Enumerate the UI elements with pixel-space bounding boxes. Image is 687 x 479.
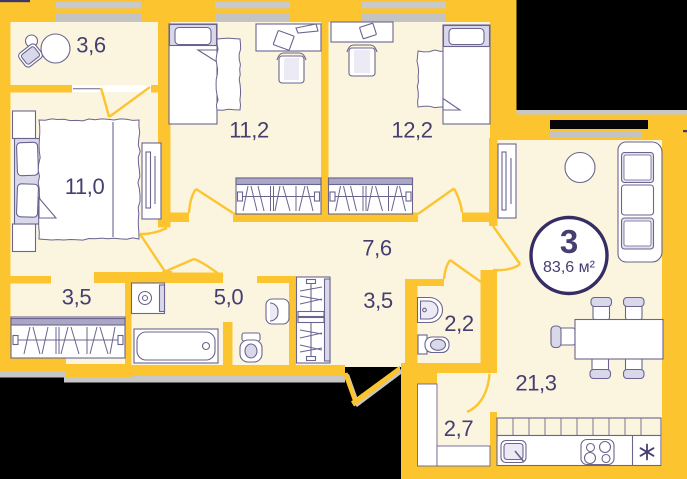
svg-text:3,5: 3,5 [363,288,393,313]
svg-text:12,2: 12,2 [391,118,432,143]
svg-text:3: 3 [560,223,578,260]
svg-text:21,3: 21,3 [515,371,556,396]
svg-text:5,0: 5,0 [214,285,244,310]
svg-text:3,6: 3,6 [76,33,106,58]
svg-text:7,6: 7,6 [362,236,392,261]
svg-text:83,6 м²: 83,6 м² [543,259,596,276]
svg-text:11,0: 11,0 [65,174,105,199]
svg-text:11,2: 11,2 [229,118,269,143]
svg-text:3,5: 3,5 [62,285,92,310]
svg-text:2,2: 2,2 [444,311,474,336]
svg-text:2,7: 2,7 [444,416,474,441]
